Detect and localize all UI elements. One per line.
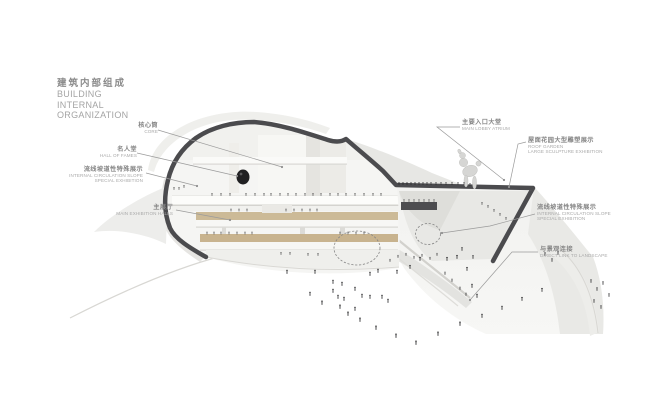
label-circulation-left-zh: 流线坡道性特殊展示 <box>69 166 143 173</box>
label-circulation-left-en: SPECIAL EXHIBITION <box>69 178 143 183</box>
label-main-exhibition: 主展厅 MAIN EXHIBITION HALLS <box>116 204 173 216</box>
label-roof-garden-en: LARGE SCULPTURE EXHIBITION <box>528 149 603 154</box>
label-circulation-left: 流线坡道性特殊展示 INTERNAL CIRCULATION SLOPE SPE… <box>69 166 143 184</box>
hall-of-fames-sphere <box>237 170 250 185</box>
label-main-lobby: 主要入口大堂 MAIN LOBBY ATRIUM <box>462 119 510 131</box>
label-landscape-link-en: DIRECT LINK TO LANDSCAPE <box>540 253 608 258</box>
label-main-exhibition-en: MAIN EXHIBITION HALLS <box>116 211 173 216</box>
label-hall-of-fames-zh: 名人堂 <box>100 146 137 153</box>
label-main-lobby-en: MAIN LOBBY ATRIUM <box>462 126 510 131</box>
label-core: 核心筒 CORE <box>138 122 158 134</box>
page-title: 建筑内部组成 BUILDING INTERNAL ORGANIZATION <box>57 78 128 121</box>
label-core-zh: 核心筒 <box>138 122 158 129</box>
label-hall-of-fames: 名人堂 HALL OF FAMES <box>100 146 137 158</box>
label-hall-of-fames-en: HALL OF FAMES <box>100 153 137 158</box>
architecture-diagram: 建筑内部组成 BUILDING INTERNAL ORGANIZATION 核心… <box>0 0 649 406</box>
label-main-exhibition-zh: 主展厅 <box>116 204 173 211</box>
title-english-line: BUILDING <box>57 89 128 100</box>
label-circulation-right-en: SPECIAL EXHIBITION <box>537 216 611 221</box>
title-chinese: 建筑内部组成 <box>57 78 128 89</box>
atrium-bridge <box>401 202 437 210</box>
label-circulation-right: 流线坡道性特殊展示 INTERNAL CIRCULATION SLOPE SPE… <box>537 204 611 222</box>
label-landscape-link: 与景观连接 DIRECT LINK TO LANDSCAPE <box>540 246 608 258</box>
building-illustration <box>0 0 649 406</box>
title-english-line: INTERNAL <box>57 100 128 111</box>
label-roof-garden: 屋面花园大型雕塑展示 ROOF GARDEN LARGE SCULPTURE E… <box>528 137 603 155</box>
label-core-en: CORE <box>138 129 158 134</box>
roof-sculpture <box>457 149 481 189</box>
label-circulation-right-zh: 流线坡道性特殊展示 <box>537 204 611 211</box>
title-english-line: ORGANIZATION <box>57 110 128 121</box>
plaza-edges <box>70 256 222 318</box>
label-main-lobby-zh: 主要入口大堂 <box>462 119 510 126</box>
label-roof-garden-zh: 屋面花园大型雕塑展示 <box>528 137 603 144</box>
core-volume <box>258 135 306 196</box>
label-landscape-link-zh: 与景观连接 <box>540 246 608 253</box>
